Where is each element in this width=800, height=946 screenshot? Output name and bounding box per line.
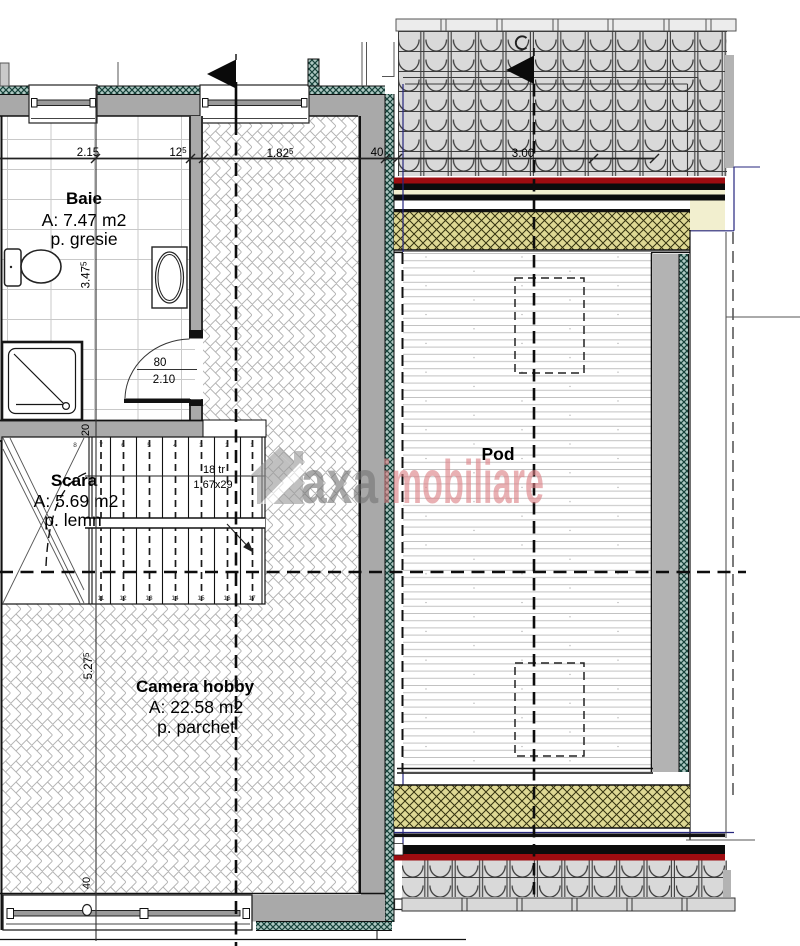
svg-text:8: 8 bbox=[73, 442, 77, 449]
svg-text:20: 20 bbox=[80, 424, 92, 436]
svg-text:12: 12 bbox=[119, 595, 127, 602]
svg-text:40: 40 bbox=[81, 877, 93, 889]
svg-text:2.10: 2.10 bbox=[153, 374, 175, 386]
svg-text:40: 40 bbox=[371, 147, 384, 159]
svg-text:Baie: Baie bbox=[66, 189, 102, 208]
svg-text:2.15: 2.15 bbox=[77, 147, 99, 159]
svg-text:3.00: 3.00 bbox=[512, 148, 534, 160]
svg-text:A: 22.58 m2: A: 22.58 m2 bbox=[149, 697, 243, 717]
svg-text:80: 80 bbox=[154, 357, 167, 369]
svg-text:5: 5 bbox=[147, 442, 151, 449]
svg-text:A: 5.69 m2: A: 5.69 m2 bbox=[34, 491, 119, 511]
svg-text:p. parchet: p. parchet bbox=[157, 717, 235, 737]
svg-text:16: 16 bbox=[223, 595, 231, 602]
svg-text:14: 14 bbox=[171, 595, 179, 602]
svg-text:13: 13 bbox=[145, 595, 153, 602]
svg-text:4: 4 bbox=[173, 442, 177, 449]
svg-text:Scara: Scara bbox=[51, 471, 98, 490]
svg-text:11: 11 bbox=[98, 595, 105, 602]
svg-text:3: 3 bbox=[199, 442, 203, 449]
svg-text:p. gresie: p. gresie bbox=[50, 229, 117, 249]
svg-text:17: 17 bbox=[248, 595, 256, 602]
svg-text:15: 15 bbox=[197, 595, 205, 602]
svg-text:7: 7 bbox=[99, 442, 103, 449]
svg-text:axa: axa bbox=[301, 448, 379, 516]
svg-text:1,67x29: 1,67x29 bbox=[193, 479, 232, 491]
svg-text:A: 7.47 m2: A: 7.47 m2 bbox=[42, 210, 127, 230]
svg-text:1: 1 bbox=[250, 442, 254, 449]
svg-text:6: 6 bbox=[121, 442, 125, 449]
svg-text:18 tr: 18 tr bbox=[203, 464, 225, 476]
svg-text:p. lemn: p. lemn bbox=[44, 510, 101, 530]
svg-text:2: 2 bbox=[225, 442, 229, 449]
svg-text:imobiliare: imobiliare bbox=[382, 448, 544, 516]
